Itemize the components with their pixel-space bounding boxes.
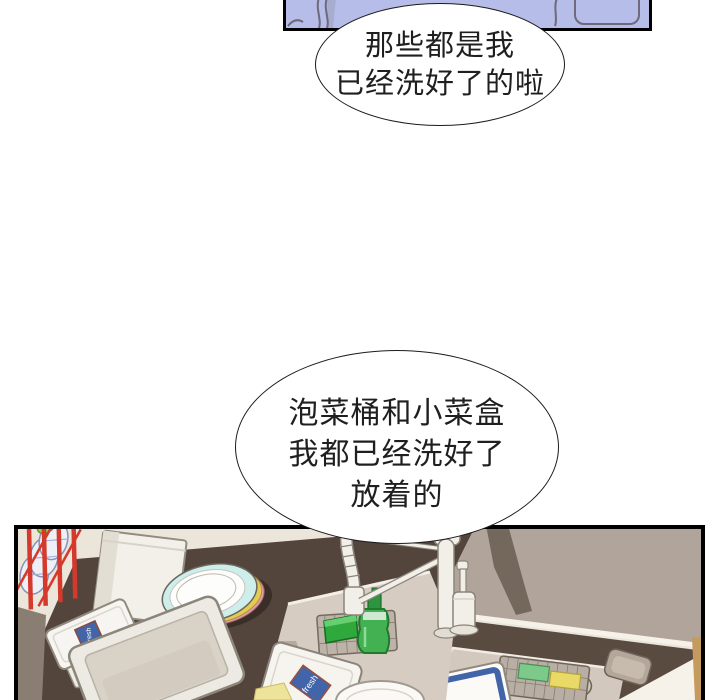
- soap-bottle-band: [363, 612, 386, 620]
- kitchen-scene: fresh: [18, 529, 701, 700]
- speech-bubble-2-text: 泡菜桶和小菜盒 我都已经洗好了 放着的: [289, 393, 506, 516]
- sponge-green: [518, 663, 550, 682]
- sponge-yellow: [549, 671, 581, 690]
- faucet-pipe: [438, 539, 454, 633]
- speech-bubble-1: 那些都是我 已经洗好了的啦: [315, 3, 565, 126]
- speech-line: 泡菜桶和小菜盒: [289, 393, 506, 434]
- floor-sliver: [18, 607, 46, 700]
- speech-line: 已经洗好了的啦: [335, 65, 545, 103]
- speech-bubble-1-text: 那些都是我 已经洗好了的啦: [335, 27, 545, 103]
- speech-line: 放着的: [289, 475, 506, 516]
- speech-line: 那些都是我: [335, 27, 545, 65]
- kitchen-panel: fresh: [14, 525, 705, 700]
- speech-line: 我都已经洗好了: [289, 434, 506, 475]
- speech-bubble-2: 泡菜桶和小菜盒 我都已经洗好了 放着的: [235, 350, 559, 544]
- comic-page: fresh: [0, 0, 720, 700]
